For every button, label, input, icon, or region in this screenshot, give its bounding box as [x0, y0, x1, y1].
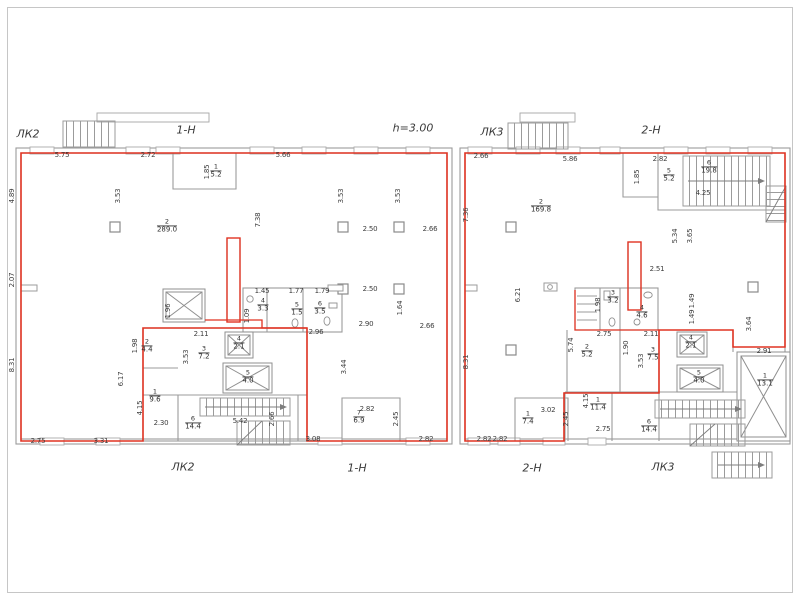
- room-number-area-label: 113.1: [757, 372, 773, 387]
- core-label-lk2-bottom: ЛК2: [171, 461, 194, 474]
- core-label-lk2-top: ЛК2: [16, 128, 39, 141]
- premise-label-1n-top: 1-Н: [176, 124, 195, 137]
- room-number-area-label: 42.1: [233, 335, 244, 350]
- core-label-lk3-top: ЛК3: [480, 126, 503, 139]
- room-number-area-label: 614.4: [641, 418, 657, 433]
- room-number-area-label: 111.4: [590, 396, 606, 411]
- core-label-lk3-bottom: ЛК3: [651, 461, 674, 474]
- room-number-area-label: 42.1: [685, 334, 696, 349]
- room-number-area-label: 15.2: [210, 163, 221, 178]
- room-number-area-label: 17.4: [522, 410, 533, 425]
- room-number-area-label: 619.8: [701, 159, 717, 174]
- room-number-area-label: 33.2: [607, 289, 618, 304]
- room-number-area-label: 43.3: [257, 297, 268, 312]
- room-number-area-label: 19.6: [149, 388, 160, 403]
- height-note: h=3.00: [393, 122, 434, 135]
- room-label-layer: 15.22289.043.351.563.524.437.242.154.019…: [0, 0, 800, 600]
- room-number-area-label: 76.9: [353, 409, 364, 424]
- room-number-area-label: 25.2: [581, 343, 592, 358]
- floor-plan-sheet: ЛК2 1-Н h=3.00 ЛК3 2-Н ЛК2 1-Н 2-Н ЛК3 5…: [0, 0, 800, 600]
- room-number-area-label: 44.6: [636, 304, 647, 319]
- room-number-area-label: 63.5: [314, 300, 325, 315]
- premise-label-2n-top: 2-Н: [641, 124, 660, 137]
- room-number-area-label: 54.0: [693, 369, 704, 384]
- room-number-area-label: 2169.8: [531, 198, 551, 213]
- room-number-area-label: 614.4: [185, 415, 201, 430]
- room-number-area-label: 24.4: [141, 338, 152, 353]
- room-number-area-label: 2289.0: [157, 218, 177, 233]
- room-number-area-label: 51.5: [291, 301, 302, 316]
- premise-label-2n-bottom: 2-Н: [522, 462, 541, 475]
- room-number-area-label: 37.5: [647, 346, 658, 361]
- room-number-area-label: 37.2: [198, 345, 209, 360]
- room-number-area-label: 55.2: [663, 167, 674, 182]
- room-number-area-label: 54.0: [242, 369, 253, 384]
- premise-label-1n-bottom: 1-Н: [347, 462, 366, 475]
